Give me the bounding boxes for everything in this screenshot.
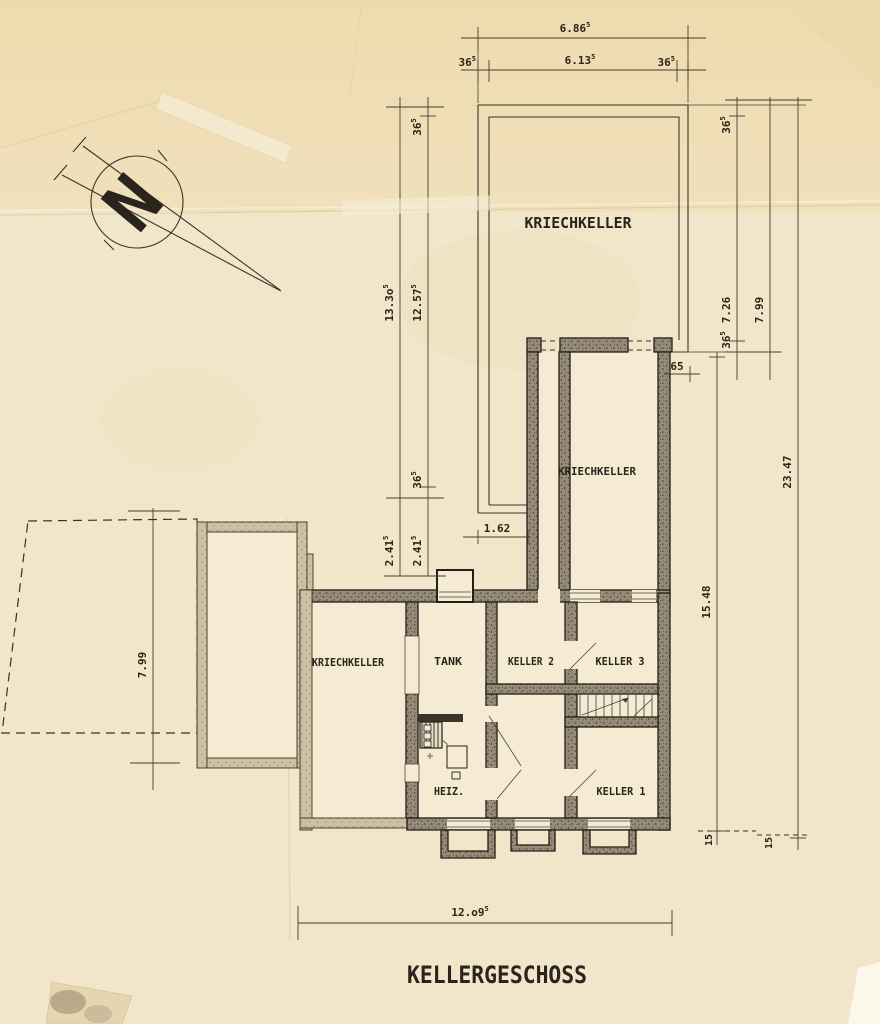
floorplan-canvas: N KRIECHKELLER KRIECHKELLER <box>0 0 880 1024</box>
main-south-wall-west <box>300 818 407 828</box>
shaft-east-wall <box>658 352 670 593</box>
heating-wall-bar <box>418 714 463 722</box>
annex-west-wall <box>197 522 207 768</box>
window-south-1 <box>447 819 490 829</box>
label-keller2: KELLER 2 <box>508 655 554 668</box>
label-heiz: HEIZ. <box>434 785 464 798</box>
dim-right-total: 23.47 <box>781 455 794 488</box>
mid-kriechkeller-structure: KRIECHKELLER <box>527 338 672 593</box>
tape-smudge <box>84 1005 112 1023</box>
dim-top-total: 6.865 <box>560 21 591 35</box>
dim-annex-height: 7.99 <box>136 652 149 679</box>
dim-offset-65: 65 <box>670 360 683 373</box>
dim-top-mid: 6.135 <box>565 53 596 67</box>
main-north-wall <box>300 590 670 602</box>
dim-left-inner: 12.575 <box>410 284 424 321</box>
main-west-wall <box>300 590 312 830</box>
window-south-2 <box>515 819 550 829</box>
label-kriechkeller-left: KRIECHKELLER <box>312 657 385 669</box>
tape-smudge <box>50 990 86 1014</box>
main-building <box>300 570 670 858</box>
window-north-1 <box>570 590 600 602</box>
scanned-floorplan-page: N KRIECHKELLER KRIECHKELLER <box>0 0 880 1024</box>
wall-kriechkeller-tank <box>406 602 418 818</box>
door-opening-keller1 <box>564 769 578 796</box>
dim-bottom-total: 12.o95 <box>451 905 488 919</box>
drawing-title: KELLERGESCHOSS <box>407 961 587 989</box>
radiator-port <box>424 733 431 739</box>
dim-plinth-b: 15 <box>764 837 775 849</box>
shaft-opening <box>538 589 560 603</box>
paper-stain <box>100 370 260 470</box>
boiler <box>447 746 467 768</box>
dim-right-upper-total: 7.99 <box>753 297 766 324</box>
annex-connector-stub <box>307 554 313 592</box>
label-kriechkeller-top: KRIECHKELLER <box>525 214 633 232</box>
dim-gap-162: 1.62 <box>484 522 511 535</box>
dim-left-total: 13.3o5 <box>382 284 396 321</box>
opening-wall1-a <box>405 636 419 694</box>
dim-right-upper-inner: 7.26 <box>720 296 733 323</box>
dim-left-ext-a: 2.415 <box>382 536 396 567</box>
main-east-wall <box>658 593 670 830</box>
label-tank: TANK <box>434 655 462 668</box>
junction-wall-block <box>654 338 672 352</box>
dim-right-lower: 15.48 <box>700 585 713 618</box>
radiator-port <box>424 725 431 731</box>
annex-floor <box>207 532 297 758</box>
annex-south-wall <box>197 758 307 768</box>
dim-left-ext-b: 2.415 <box>410 536 424 567</box>
label-keller3: KELLER 3 <box>596 655 645 668</box>
label-keller1: KELLER 1 <box>597 785 646 798</box>
dim-plinth-a: 15 <box>704 834 715 846</box>
junction-wall-block <box>527 338 541 352</box>
paper-background <box>0 0 880 1024</box>
wall-corridor-north <box>486 684 658 694</box>
door-opening-keller3 <box>564 641 578 669</box>
floor-drain <box>452 772 460 779</box>
annex-north-wall <box>197 522 307 532</box>
radiator-port <box>424 741 431 747</box>
wall-stairs-south <box>565 717 658 727</box>
window-south-3 <box>588 819 630 829</box>
junction-wall-bar <box>560 338 628 352</box>
window-north-2 <box>632 590 656 602</box>
chimney-bump <box>437 570 473 602</box>
opening-wall1-b <box>405 764 419 782</box>
door-opening-heiz <box>485 768 498 800</box>
label-kriechkeller-mid: KRIECHKELLER <box>558 465 636 478</box>
shaft-west-wall <box>527 352 538 593</box>
